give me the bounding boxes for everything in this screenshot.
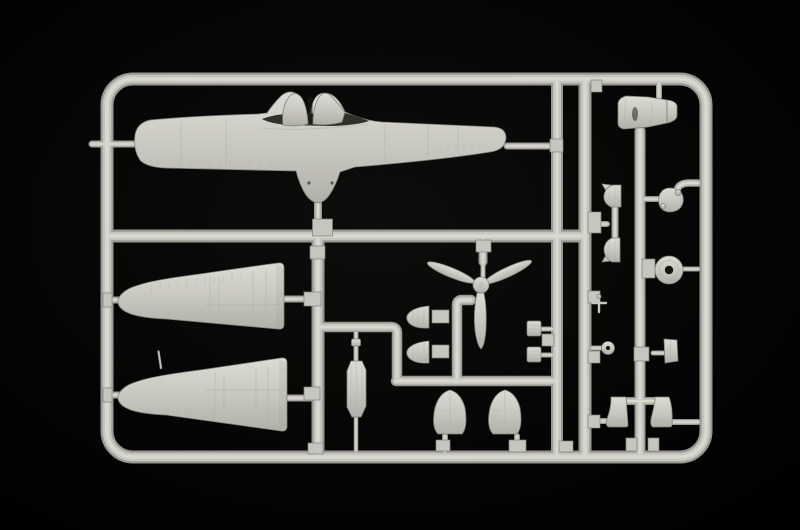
part-ribbed-block-a [527,321,541,336]
part-tail-wheel [602,342,615,355]
sprue-photo [0,0,800,530]
part-flat-panel [664,339,678,363]
headrest-gap [308,97,313,124]
part-round-blob [658,188,683,212]
sprue-photo-canvas [0,0,800,530]
part-main-wheel [655,256,683,284]
part-ribbed-block-b [527,347,541,362]
